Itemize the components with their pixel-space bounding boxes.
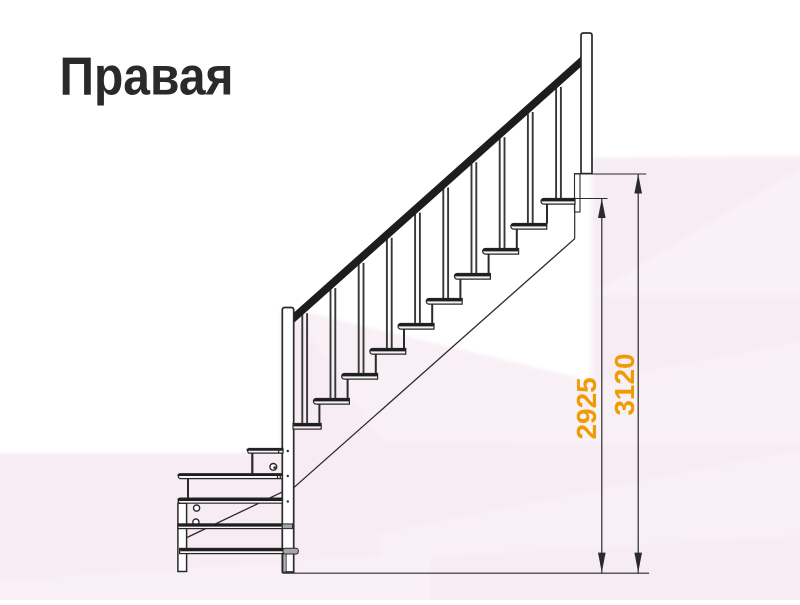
svg-text:2925: 2925 <box>571 377 602 439</box>
svg-text:3120: 3120 <box>609 353 640 415</box>
svg-text:Правая: Правая <box>60 47 234 107</box>
